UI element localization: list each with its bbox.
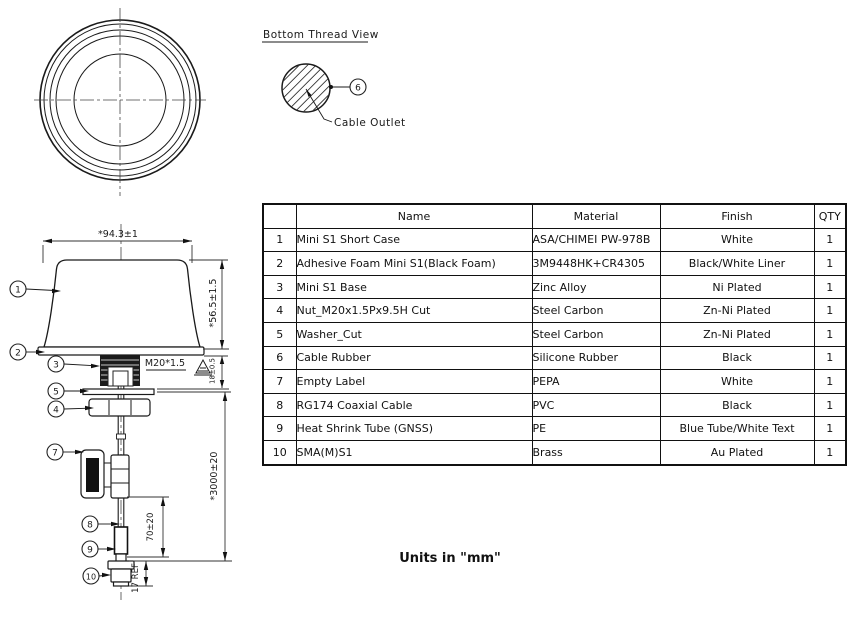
table-row: 6 Cable Rubber Silicone Rubber Black 1 <box>263 346 846 370</box>
row-name: Adhesive Foam Mini S1(Black Foam) <box>296 252 532 276</box>
washer <box>83 389 154 395</box>
row-no: 4 <box>263 299 296 323</box>
row-qty: 1 <box>814 417 846 441</box>
row-no: 10 <box>263 440 296 464</box>
dim-shrink-offset-label: 70±20 <box>146 513 156 542</box>
row-material: Steel Carbon <box>532 299 660 323</box>
row-name: Heat Shrink Tube (GNSS) <box>296 417 532 441</box>
row-name: RG174 Coaxial Cable <box>296 393 532 417</box>
bottom-thread-view: Bottom Thread View 6 Cable Outlet <box>262 29 406 129</box>
row-no: 1 <box>263 228 296 252</box>
row-name: Empty Label <box>296 370 532 394</box>
row-qty: 1 <box>814 252 846 276</box>
row-no: 9 <box>263 417 296 441</box>
row-qty: 1 <box>814 228 846 252</box>
bom-table: Name Material Finish QTY 1 Mini S1 Short… <box>262 203 847 466</box>
dim-connector-ref-label: 17 REF <box>131 563 141 593</box>
nut <box>89 399 150 416</box>
row-no: 8 <box>263 393 296 417</box>
bom-header-row: Name Material Finish QTY <box>263 204 846 228</box>
dim-width-label: *94.3±1 <box>98 229 138 240</box>
top-view <box>34 8 206 196</box>
balloon-6-label: 6 <box>355 84 361 94</box>
row-name: Cable Rubber <box>296 346 532 370</box>
row-name: Washer_Cut <box>296 322 532 346</box>
row-no: 3 <box>263 275 296 299</box>
row-no: 6 <box>263 346 296 370</box>
row-material: PVC <box>532 393 660 417</box>
row-finish: Black <box>660 393 814 417</box>
row-no: 2 <box>263 252 296 276</box>
cable-joint <box>117 434 126 439</box>
col-header-finish: Finish <box>660 204 814 228</box>
thread-spec-label: M20*1.5 <box>145 358 185 369</box>
side-view: *94.3±1 *56.5±1.5 M20*1.5 18±0.5 *3000±2… <box>10 224 232 600</box>
col-header-qty: QTY <box>814 204 846 228</box>
thread-section <box>100 355 140 386</box>
table-row: 5 Washer_Cut Steel Carbon Zn-Ni Plated 1 <box>263 322 846 346</box>
row-material: PE <box>532 417 660 441</box>
balloon-9-label: 9 <box>87 546 93 556</box>
row-no: 7 <box>263 370 296 394</box>
row-name: SMA(M)S1 <box>296 440 532 464</box>
row-material: Zinc Alloy <box>532 275 660 299</box>
col-header-no <box>263 204 296 228</box>
dim-thread-height-label: 18±0.5 <box>209 358 217 384</box>
row-qty: 1 <box>814 393 846 417</box>
heat-shrink-tube <box>115 527 128 554</box>
row-finish: Black/White Liner <box>660 252 814 276</box>
balloon-8-label: 8 <box>87 521 93 531</box>
balloon-10-label: 10 <box>86 573 96 582</box>
table-row: 7 Empty Label PEPA White 1 <box>263 370 846 394</box>
row-finish: Zn-Ni Plated <box>660 322 814 346</box>
label-print-block <box>86 458 99 492</box>
base-flange <box>38 347 204 355</box>
row-qty: 1 <box>814 370 846 394</box>
balloon-5-label: 5 <box>53 388 59 398</box>
cable-outlet-circle <box>282 64 330 112</box>
row-name: Mini S1 Short Case <box>296 228 532 252</box>
row-material: Brass <box>532 440 660 464</box>
dim-height-label: *56.5±1.5 <box>208 279 219 328</box>
col-header-name: Name <box>296 204 532 228</box>
col-header-material: Material <box>532 204 660 228</box>
row-finish: Ni Plated <box>660 275 814 299</box>
units-note: Units in "mm" <box>380 551 520 566</box>
table-row: 4 Nut_M20x1.5Px9.5H Cut Steel Carbon Zn-… <box>263 299 846 323</box>
row-name: Mini S1 Base <box>296 275 532 299</box>
radome-dome <box>44 260 200 347</box>
row-qty: 1 <box>814 275 846 299</box>
row-qty: 1 <box>814 440 846 464</box>
row-qty: 1 <box>814 322 846 346</box>
empty-label-tag <box>81 450 129 498</box>
table-row: 1 Mini S1 Short Case ASA/CHIMEI PW-978B … <box>263 228 846 252</box>
table-row: 2 Adhesive Foam Mini S1(Black Foam) 3M94… <box>263 252 846 276</box>
row-finish: White <box>660 228 814 252</box>
row-qty: 1 <box>814 346 846 370</box>
row-material: ASA/CHIMEI PW-978B <box>532 228 660 252</box>
balloon-4-label: 4 <box>53 406 59 416</box>
table-row: 9 Heat Shrink Tube (GNSS) PE Blue Tube/W… <box>263 417 846 441</box>
row-finish: Au Plated <box>660 440 814 464</box>
row-finish: Zn-Ni Plated <box>660 299 814 323</box>
bottom-thread-view-title: Bottom Thread View <box>263 29 379 41</box>
row-finish: Black <box>660 346 814 370</box>
row-material: PEPA <box>532 370 660 394</box>
dim-cable-length-label: *3000±20 <box>209 452 220 501</box>
top-view-centerlines <box>34 8 206 196</box>
balloon-7-label: 7 <box>52 449 58 459</box>
table-row: 3 Mini S1 Base Zinc Alloy Ni Plated 1 <box>263 275 846 299</box>
row-qty: 1 <box>814 299 846 323</box>
row-finish: Blue Tube/White Text <box>660 417 814 441</box>
engineering-drawing-page: Bottom Thread View 6 Cable Outlet <box>0 0 850 623</box>
table-row: 8 RG174 Coaxial Cable PVC Black 1 <box>263 393 846 417</box>
row-material: Silicone Rubber <box>532 346 660 370</box>
row-name: Nut_M20x1.5Px9.5H Cut <box>296 299 532 323</box>
balloon-3-label: 3 <box>53 361 59 371</box>
leader-dot <box>329 85 333 89</box>
balloon-2-label: 2 <box>15 349 21 359</box>
row-no: 5 <box>263 322 296 346</box>
cable-outlet-label: Cable Outlet <box>334 117 406 129</box>
table-row: 10 SMA(M)S1 Brass Au Plated 1 <box>263 440 846 464</box>
row-material: 3M9448HK+CR4305 <box>532 252 660 276</box>
row-finish: White <box>660 370 814 394</box>
row-material: Steel Carbon <box>532 322 660 346</box>
balloon-1-label: 1 <box>15 286 21 296</box>
